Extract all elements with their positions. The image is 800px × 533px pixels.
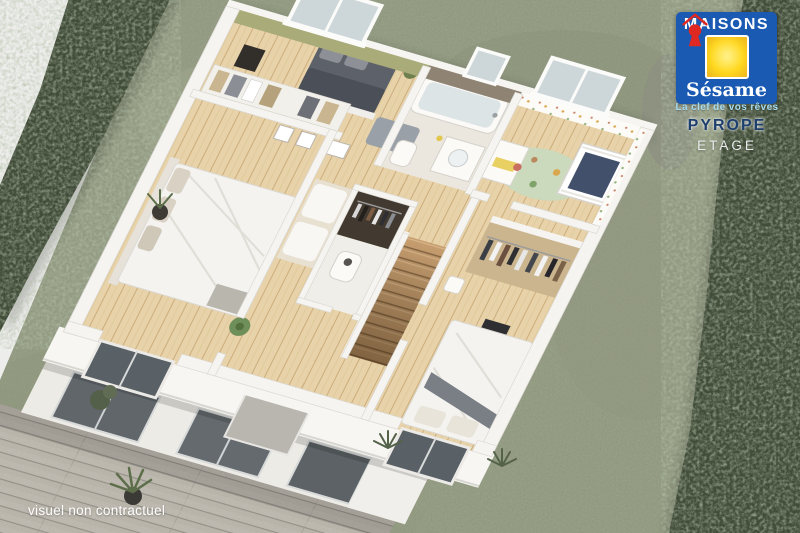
floor-level-label: ETAGE [652,138,800,153]
keyhole-glyph [676,12,714,50]
floorplan-visual: MAISONS Sésame La clef de vos rêves PYRO… [0,0,800,533]
model-name: PYROPE [652,117,800,135]
brand-tagline: La clef de vos rêves [652,102,800,113]
disclaimer-text: visuel non contractuel [28,503,165,518]
brand-name-bottom: Sésame [686,81,767,100]
brand-logo: MAISONS Sésame [676,12,777,104]
house-keyhole-icon [705,35,749,79]
